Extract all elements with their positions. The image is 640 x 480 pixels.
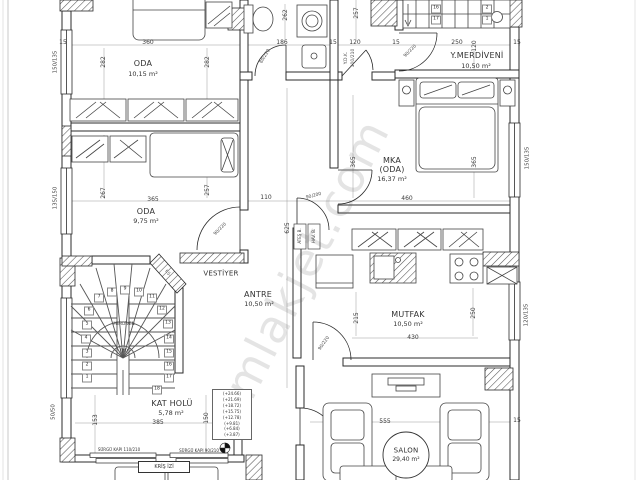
beam-trace-label: KRİŞ İZİ <box>154 464 173 470</box>
dim-label: 365 <box>147 197 158 203</box>
dim-label: 150 <box>204 412 210 423</box>
room-label-salon: SALON <box>394 448 419 455</box>
room-label-kat-holu: KAT HOLÜ <box>151 400 192 408</box>
room-area-mka: 16,37 m² <box>377 176 407 183</box>
upper-stairs <box>403 0 510 28</box>
stair-number: 6 <box>84 307 94 316</box>
bed-oda1 <box>133 0 232 40</box>
dim-label: 250 <box>471 307 477 318</box>
room-sublabel-mka: (ODA) <box>379 166 404 174</box>
window-label: 150/135 <box>525 147 531 170</box>
stair-number: 15 <box>164 349 174 358</box>
stair-number: 14 <box>164 335 174 344</box>
stair-number: 1 <box>82 374 92 383</box>
bed-mka <box>399 78 515 172</box>
dim-label: 257 <box>205 184 211 195</box>
window-label: 120/135 <box>524 304 530 327</box>
stair-number: 13 <box>163 320 173 329</box>
kitchen-cabinets <box>352 229 483 250</box>
dim-label: 110 <box>260 195 271 201</box>
room-area-oda1: 10,15 m² <box>128 71 158 78</box>
dim-label: 153 <box>93 414 99 425</box>
dim-label: 365 <box>472 156 478 167</box>
dim-label: 460 <box>401 196 412 202</box>
stair-number: 5 <box>82 321 92 330</box>
dim-label: 267 <box>101 187 107 198</box>
dim-label: 430 <box>407 335 418 341</box>
stair-number: 18 <box>152 386 162 395</box>
bath-sink <box>302 45 326 68</box>
room-label-antre: ANTRE <box>244 291 272 299</box>
stair-number: 10 <box>134 288 144 297</box>
wardrobe-oda2 <box>72 136 146 162</box>
dim-label: 257 <box>354 7 360 18</box>
room-area-y-merdiveni: 10,50 m² <box>461 63 491 70</box>
window-label: 50/50 <box>51 404 57 420</box>
stair-number: 16 <box>431 5 441 14</box>
sliding-door-label: SÜRGÜ KAPI 110/210 <box>98 448 140 452</box>
dim-label: 282 <box>101 56 107 67</box>
room-area-mutfak: 10,50 m² <box>393 321 423 328</box>
elevation-label: (+3.87) <box>224 432 239 438</box>
stair-number: 16 <box>164 362 174 371</box>
dim-label: 15 <box>59 40 67 46</box>
dim-label: 186 <box>276 40 287 46</box>
window-label: 135/150 <box>53 187 59 210</box>
stove <box>450 254 483 283</box>
stair-number: 2 <box>82 362 92 371</box>
dim-label: 120 <box>472 40 478 51</box>
stair-number: 11 <box>147 294 157 303</box>
dim-label: 15 <box>513 40 521 46</box>
door-label: 100/210 <box>352 49 357 68</box>
salon-label-circle <box>383 432 429 478</box>
dim-label: 385 <box>152 420 163 426</box>
dim-label: 555 <box>379 419 390 425</box>
beam-trace-box: KRİŞ İZİ <box>138 461 190 473</box>
dim-label: 625 <box>285 222 291 233</box>
dim-label: 282 <box>205 56 211 67</box>
level-symbol <box>220 443 230 453</box>
stair-number: 8 <box>107 288 117 297</box>
window-label: 150/135 <box>53 51 59 74</box>
room-area-salon: 29,40 m² <box>392 457 419 463</box>
kitchen-sink <box>370 253 416 283</box>
dim-label: 15 <box>513 418 521 424</box>
dim-label: 365 <box>351 156 357 167</box>
dim-label: 15 <box>329 40 337 46</box>
stair-number: 9 <box>120 286 130 295</box>
stair-number: 1 <box>482 16 492 25</box>
stair-number: 17 <box>431 16 441 25</box>
tv-unit <box>372 374 440 397</box>
dim-label: 215 <box>354 312 360 323</box>
room-label-y-merdiveni: Y.MERDİVENİ <box>451 52 504 60</box>
room-label-oda1: ODA <box>134 60 152 68</box>
dim-label: 15 <box>392 40 400 46</box>
dim-label: 262 <box>283 9 289 20</box>
stair-number: 7 <box>94 294 104 303</box>
room-area-oda2: 9,75 m² <box>133 218 158 225</box>
room-label-mka: MKA <box>383 157 401 165</box>
wardrobe-oda1 <box>70 99 238 121</box>
shaft-label: HAV. B. <box>312 229 316 243</box>
stair-number: 17 <box>164 374 174 383</box>
dim-label: 360 <box>142 40 153 46</box>
floor-plan-page: emlakjet.com ODA 10,15 m² Y.MERDİVENİ 10… <box>0 0 640 480</box>
stair-number: 12 <box>157 306 167 315</box>
bed-oda2 <box>150 133 238 177</box>
stair-number: 4 <box>81 335 91 344</box>
room-area-kat-holu: 5,78 m² <box>158 410 183 417</box>
room-area-antre: 10,50 m² <box>244 301 274 308</box>
room-label-oda2: ODA <box>137 208 155 216</box>
room-label-merdiven: MERDİVEN <box>113 322 134 326</box>
elevation-levels: (+24.66) (+21.69) (+18.72) (+15.75) (+12… <box>212 389 252 440</box>
room-label-mutfak: MUTFAK <box>391 311 424 319</box>
washing-machine <box>297 5 327 37</box>
toilet <box>244 5 273 33</box>
shaft-label: ATEŞ B. <box>298 228 302 243</box>
dim-label: 250 <box>451 40 462 46</box>
merdiven-mark: (M) <box>120 350 128 355</box>
dim-label: 120 <box>349 40 360 46</box>
door-label: Y.D.K. <box>345 52 350 65</box>
stair-number: 2 <box>482 5 492 14</box>
stair-number: 3 <box>82 349 92 358</box>
sliding-door-label: SÜRGÜ KAPI 90/210 <box>179 449 219 453</box>
room-label-vestiyer: VESTİYER <box>203 271 238 278</box>
flue-box <box>487 267 517 284</box>
